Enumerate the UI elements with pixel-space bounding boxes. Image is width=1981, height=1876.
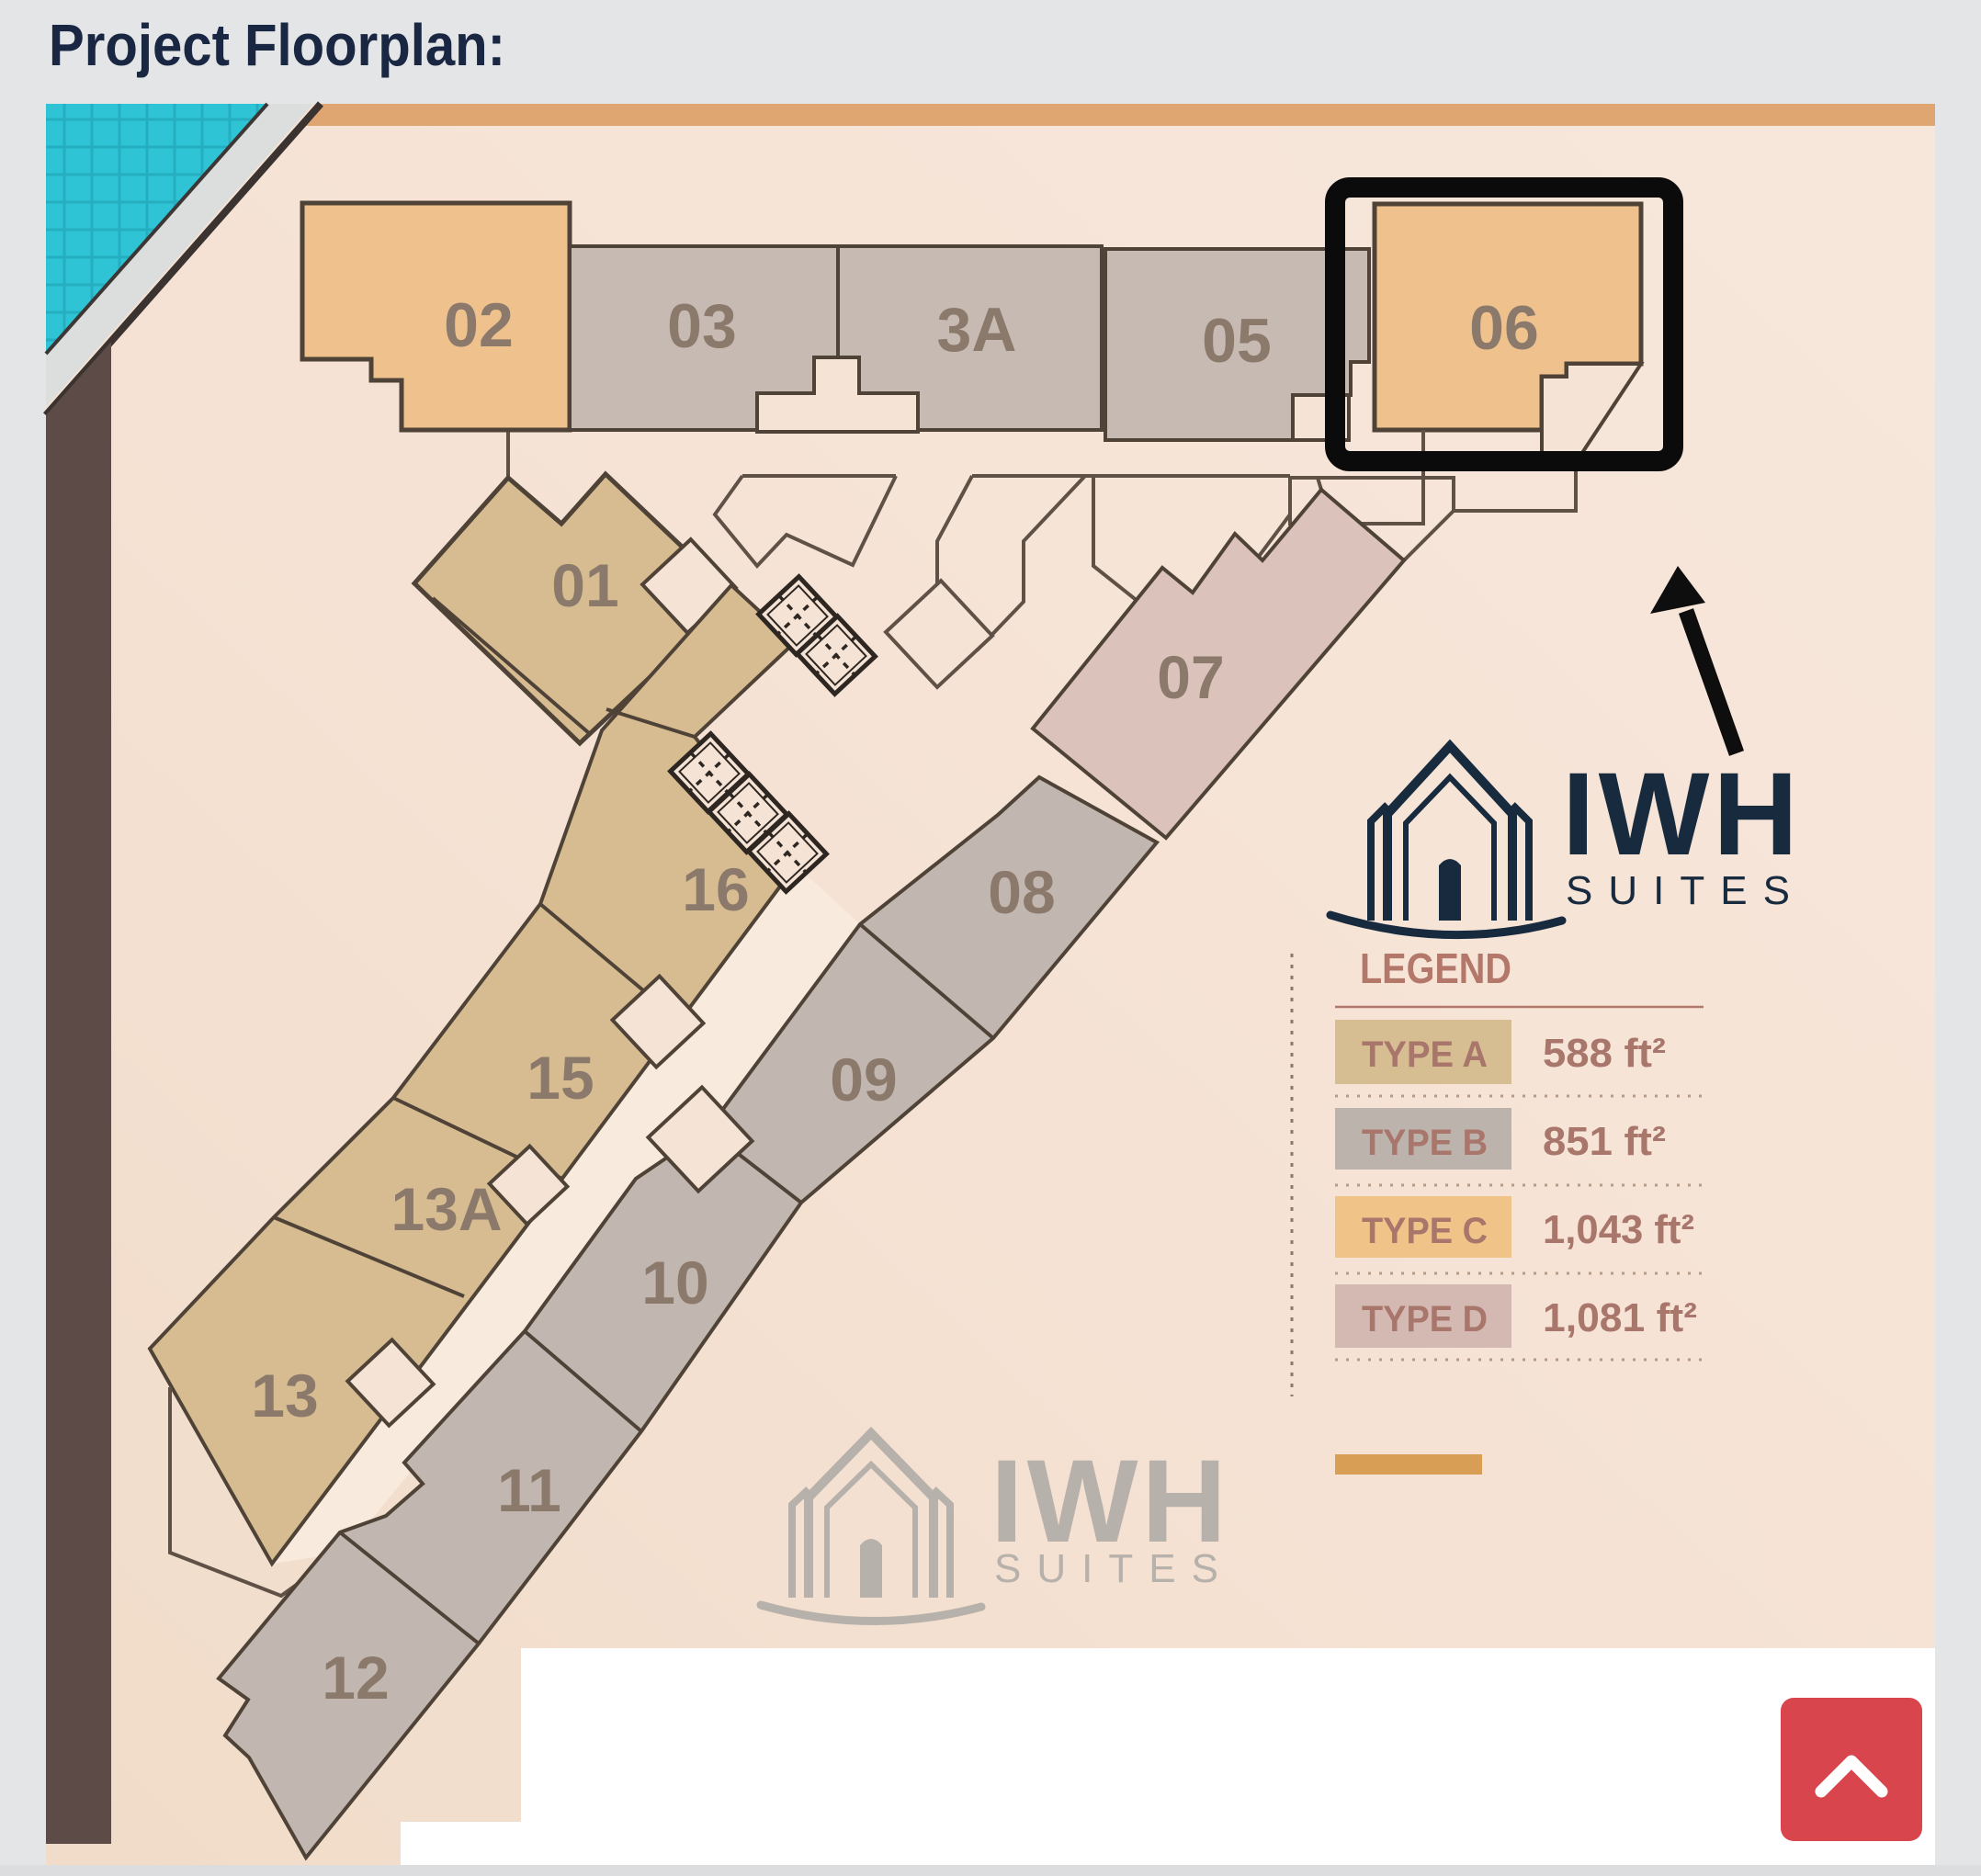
svg-text:06: 06 [1469, 293, 1539, 363]
svg-text:01: 01 [551, 551, 618, 619]
svg-text:IWH: IWH [1562, 749, 1802, 880]
svg-text:13A: 13A [391, 1175, 502, 1243]
svg-text:15: 15 [526, 1044, 594, 1112]
svg-text:03: 03 [667, 291, 737, 361]
svg-text:09: 09 [830, 1045, 897, 1113]
svg-text:851 ft²: 851 ft² [1543, 1119, 1666, 1164]
svg-text:12: 12 [322, 1644, 389, 1712]
svg-text:TYPE A: TYPE A [1362, 1034, 1488, 1075]
svg-text:16: 16 [682, 855, 749, 923]
svg-text:LEGEND: LEGEND [1360, 944, 1511, 992]
svg-text:1,081 ft²: 1,081 ft² [1543, 1295, 1697, 1340]
svg-text:05: 05 [1202, 306, 1272, 376]
svg-text:588 ft²: 588 ft² [1543, 1031, 1666, 1076]
svg-text:TYPE B: TYPE B [1362, 1123, 1488, 1163]
svg-text:Project Floorplan:: Project Floorplan: [49, 12, 505, 78]
svg-text:SUITES: SUITES [994, 1546, 1234, 1591]
svg-text:TYPE C: TYPE C [1362, 1211, 1488, 1251]
svg-text:1,043 ft²: 1,043 ft² [1543, 1207, 1694, 1252]
svg-text:SUITES: SUITES [1566, 868, 1806, 913]
svg-text:08: 08 [988, 858, 1055, 926]
svg-text:10: 10 [641, 1249, 708, 1317]
svg-text:13: 13 [251, 1362, 318, 1430]
svg-text:TYPE D: TYPE D [1362, 1299, 1488, 1339]
svg-text:02: 02 [444, 290, 514, 360]
svg-text:07: 07 [1157, 643, 1224, 711]
svg-text:3A: 3A [937, 295, 1017, 365]
svg-text:11: 11 [497, 1456, 561, 1524]
